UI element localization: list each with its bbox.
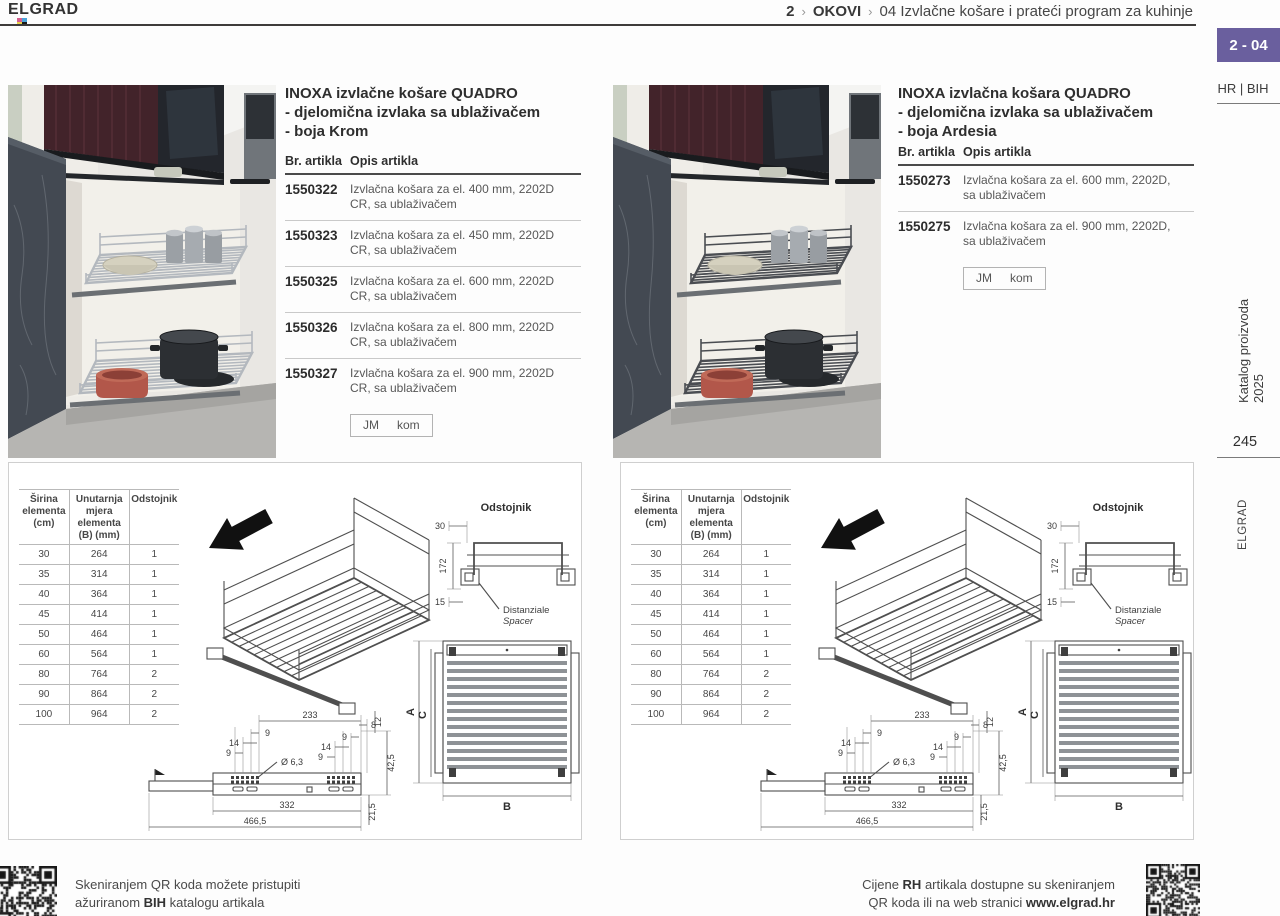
article-code: 1550326 — [285, 320, 350, 350]
odstojnik-detail: Odstojnik 30 172 15 Dist — [1047, 502, 1187, 627]
spacer-label: Spacer — [1115, 616, 1146, 627]
dim-label: 21,5 — [367, 803, 377, 821]
dim-label: B — [503, 801, 511, 813]
technical-drawing-panel: Širina elementa (cm) Unutarnja mjera ele… — [8, 462, 582, 840]
spacer-label: Distanziale — [1115, 605, 1161, 616]
footer-note-right: Cijene RH artikala dostupne su skeniranj… — [815, 876, 1115, 912]
jm-value: kom — [1010, 271, 1033, 285]
tech-drawing-svg: Odstojnik 30 172 15 Dist — [9, 463, 581, 839]
table-row: 1550327 Izvlačna košara za el. 900 mm, 2… — [285, 359, 581, 404]
direction-arrow-icon — [201, 500, 278, 564]
dim-label: 332 — [891, 800, 906, 810]
dim-label: A — [1017, 708, 1029, 716]
catalog-page: ELGRAD 2›OKOVI›04 Izvlačne košare i prat… — [0, 0, 1280, 916]
dim-label: 15 — [435, 597, 445, 607]
table-row: 1550273 Izvlačna košara za el. 600 mm, 2… — [898, 166, 1194, 212]
side-view: 233 9 14 9 8 9 14 9 Ø 6,3 — [761, 710, 1008, 831]
footer-note-left: Skeniranjem QR koda možete pristupiti až… — [75, 876, 300, 912]
header-divider — [0, 24, 1196, 26]
dim-label: Ø 6,3 — [281, 757, 303, 767]
odstojnik-detail: Odstojnik 30 172 15 Dist — [435, 502, 575, 627]
dim-label: 233 — [302, 710, 317, 720]
table-row: 1550326 Izvlačna košara za el. 800 mm, 2… — [285, 313, 581, 359]
dim-label: 21,5 — [979, 803, 989, 821]
article-code: 1550323 — [285, 228, 350, 258]
breadcrumb-section[interactable]: OKOVI — [813, 3, 861, 20]
article-table-header: Br. artikla Opis artikla — [898, 145, 1194, 166]
front-view: A C B — [405, 641, 579, 813]
dim-label: 15 — [1047, 597, 1057, 607]
article-description: Izvlačna košara za el. 900 mm, 2202D CR,… — [350, 366, 568, 396]
spacer-label: Spacer — [503, 616, 534, 627]
dim-label: 42,5 — [386, 754, 396, 772]
dim-label: 9 — [265, 728, 270, 738]
odstojnik-title: Odstojnik — [1093, 502, 1145, 514]
front-view: A C B — [1017, 641, 1191, 813]
article-code: 1550275 — [898, 219, 963, 249]
dim-label: 30 — [1047, 521, 1057, 531]
elgrad-logo: ELGRAD — [8, 1, 79, 19]
article-description: Izvlačna košara za el. 600 mm, 2202D, sa… — [963, 173, 1181, 203]
article-description: Izvlačna košara za el. 900 mm, 2202D, sa… — [963, 219, 1181, 249]
divider — [1217, 457, 1280, 458]
table-row: 1550275 Izvlačna košara za el. 900 mm, 2… — [898, 212, 1194, 257]
dim-label: 14 — [933, 742, 943, 752]
odstojnik-title: Odstojnik — [481, 502, 533, 514]
dim-label: 332 — [279, 800, 294, 810]
qr-code-rh[interactable] — [1146, 864, 1200, 916]
dim-label: 42,5 — [998, 754, 1008, 772]
article-code: 1550273 — [898, 173, 963, 203]
tech-drawing-svg: Odstojnik 30 172 15 Dist — [621, 463, 1193, 839]
article-description: Izvlačna košara za el. 800 mm, 2202D CR,… — [350, 320, 568, 350]
table-row: 1550325 Izvlačna košara za el. 600 mm, 2… — [285, 267, 581, 313]
article-table-header: Br. artikla Opis artikla — [285, 154, 581, 175]
qr-code-bih[interactable] — [0, 866, 57, 916]
dim-label: B — [1115, 801, 1123, 813]
product-title: INOXA izvlačna košara QUADRO - djelomičn… — [898, 84, 1194, 141]
kitchen-scene — [8, 85, 276, 458]
article-code: 1550327 — [285, 366, 350, 396]
product-title: INOXA izvlačne košare QUADRO - djelomičn… — [285, 84, 581, 141]
unit-of-measure-box: JM kom — [350, 414, 433, 437]
product-block-krom: INOXA izvlačne košare QUADRO - djelomičn… — [285, 84, 581, 437]
page-number: 245 — [1222, 434, 1268, 450]
dim-label: 9 — [342, 732, 347, 742]
dim-label: 466,5 — [856, 816, 879, 826]
jm-label: JM — [976, 271, 992, 285]
breadcrumb[interactable]: 2›OKOVI›04 Izvlačne košare i prateći pro… — [786, 3, 1193, 20]
article-description: Izvlačna košara za el. 400 mm, 2202D CR,… — [350, 182, 568, 212]
table-row: 1550322 Izvlačna košara za el. 400 mm, 2… — [285, 175, 581, 221]
jm-label: JM — [363, 418, 379, 432]
dim-label: 14 — [229, 738, 239, 748]
article-description: Izvlačna košara za el. 600 mm, 2202D CR,… — [350, 274, 568, 304]
chevron-right-icon: › — [794, 4, 812, 19]
dim-label: 12 — [373, 717, 383, 727]
dim-label: C — [1029, 711, 1041, 719]
dim-label: Ø 6,3 — [893, 757, 915, 767]
dim-label: 30 — [435, 521, 445, 531]
breadcrumb-subsection-label: Izvlačne košare i prateći program za kuh… — [900, 3, 1193, 20]
product-photo-krom — [8, 85, 276, 458]
side-view: 233 9 14 9 8 9 14 9 Ø 6,3 — [149, 710, 396, 831]
chevron-right-icon: › — [861, 4, 879, 19]
brand-vertical: ELGRAD — [1237, 492, 1249, 550]
dim-label: 12 — [985, 717, 995, 727]
kitchen-scene — [613, 85, 881, 458]
dim-label: 14 — [841, 738, 851, 748]
dim-label: 9 — [954, 732, 959, 742]
dim-label: 9 — [838, 748, 843, 758]
dim-label: 9 — [318, 752, 323, 762]
dim-label: C — [417, 711, 429, 719]
direction-arrow-icon — [813, 500, 890, 564]
dim-label: 9 — [877, 728, 882, 738]
dim-label: 14 — [321, 742, 331, 752]
product-block-ardesia: INOXA izvlačna košara QUADRO - djelomičn… — [898, 84, 1194, 290]
dim-label: A — [405, 708, 417, 716]
jm-value: kom — [397, 418, 420, 432]
dim-label: 466,5 — [244, 816, 267, 826]
dim-label: 9 — [226, 748, 231, 758]
article-code: 1550322 — [285, 182, 350, 212]
dim-label: 233 — [914, 710, 929, 720]
dim-label: 172 — [1050, 558, 1060, 573]
website-link[interactable]: www.elgrad.hr — [1026, 895, 1115, 910]
catalog-title-vertical: Katalog proizvoda 2025 — [1236, 267, 1266, 403]
breadcrumb-subsection-number: 04 — [880, 3, 897, 20]
unit-of-measure-box: JM kom — [963, 267, 1046, 290]
language-label: HR | BIH — [1206, 81, 1280, 96]
technical-drawing-panel: Širina elementa (cm) Unutarnja mjera ele… — [620, 462, 1194, 840]
article-description: Izvlačna košara za el. 450 mm, 2202D CR,… — [350, 228, 568, 258]
dim-label: 9 — [930, 752, 935, 762]
section-tab-badge: 2 - 04 — [1217, 28, 1280, 62]
spacer-label: Distanziale — [503, 605, 549, 616]
table-row: 1550323 Izvlačna košara za el. 450 mm, 2… — [285, 221, 581, 267]
divider — [1217, 103, 1280, 104]
dim-label: 172 — [438, 558, 448, 573]
article-code: 1550325 — [285, 274, 350, 304]
product-photo-ardesia — [613, 85, 881, 458]
